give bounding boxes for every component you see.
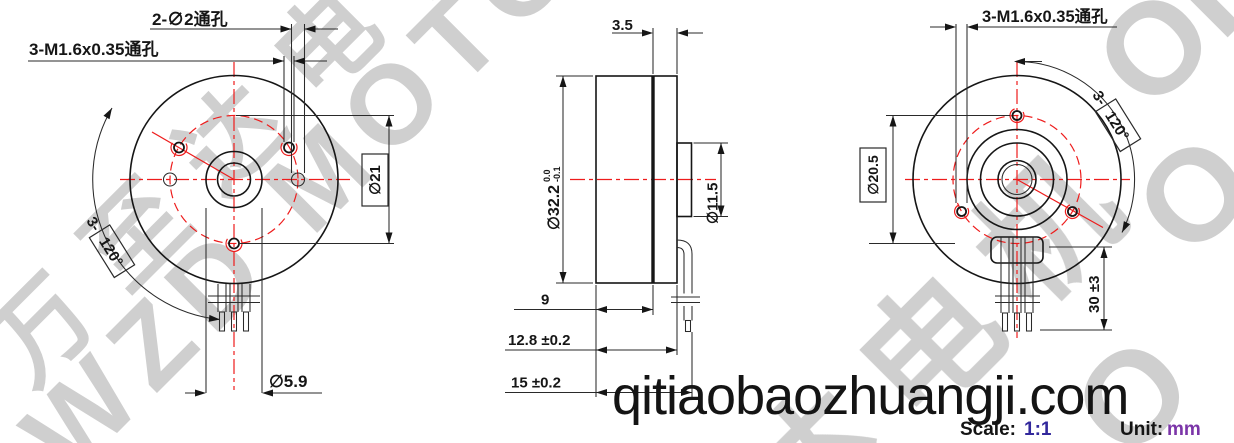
front-hub-dia-label: ∅5.9 xyxy=(269,372,307,391)
motor-dimension-drawing: 万至达电机 WZD MOTOR 达电机 OR O O xyxy=(0,0,1234,443)
side-outer-dia-label: ∅32.2 xyxy=(546,185,563,230)
side-wire-pin xyxy=(671,240,700,332)
site-watermark-text: qitiaobaozhuangji.com xyxy=(612,366,1128,426)
front-hole-note-2-label: 2-∅2通孔 xyxy=(152,10,228,29)
side-total-len-label: 15 ±0.2 xyxy=(511,375,561,392)
unit-value: mm xyxy=(1167,419,1201,440)
back-wire-len-label: 30 ±3 xyxy=(1086,276,1103,313)
front-bolt-circle-dia-label: ∅21 xyxy=(367,165,384,195)
scale-label: Scale: xyxy=(960,419,1016,440)
side-body-len-label: 12.8 ±0.2 xyxy=(508,332,570,349)
front-hole-note-3-label: 3-M1.6x0.35通孔 xyxy=(29,40,158,59)
side-rear-len-label: 3.5 xyxy=(612,17,633,34)
unit-label: Unit: xyxy=(1120,419,1163,440)
side-boss-dia-dim: ∅11.5 xyxy=(694,143,729,224)
side-rear-len-dim: 3.5 xyxy=(612,17,703,74)
side-view: 3.5 ∅32.2 0.0 -0.1 ∅11.5 9 xyxy=(505,17,728,397)
scale-value: 1:1 xyxy=(1024,419,1052,440)
side-outer-dia-dim: ∅32.2 0.0 -0.1 xyxy=(542,76,593,283)
drawing-canvas: 万至达电机 WZD MOTOR 达电机 OR O O xyxy=(0,0,1234,443)
back-hole-note-3-label: 3-M1.6x0.35通孔 xyxy=(982,7,1108,26)
side-boss-dia-label: ∅11.5 xyxy=(705,183,722,224)
back-bolt-circle-dia-label: ∅20.5 xyxy=(865,155,881,195)
side-outer-dia-tol-lower: -0.1 xyxy=(552,166,562,182)
back-angle-count-label: 3- xyxy=(1089,88,1110,108)
side-outer-dia-tol-upper: 0.0 xyxy=(542,169,552,182)
side-front-len-label: 9 xyxy=(541,292,549,309)
